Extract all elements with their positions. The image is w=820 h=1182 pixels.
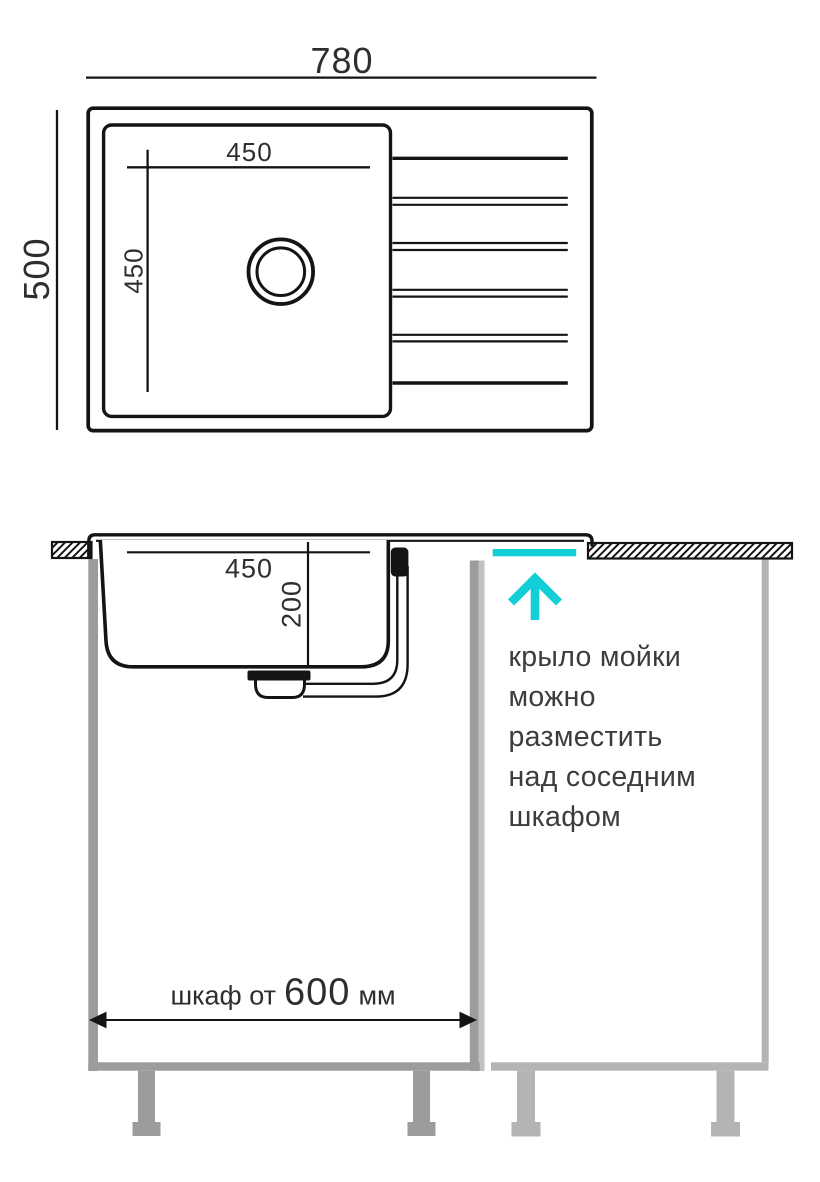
top-view: 780 500 450 450 [16, 40, 597, 431]
cabinet-leg [413, 1071, 430, 1122]
cabinet-width-value: 600 [284, 972, 350, 1014]
countertop-right-section [588, 543, 792, 559]
cabinet-left-side-panel [88, 559, 98, 1071]
overall-depth-label: 500 [16, 237, 57, 300]
annotation-text: крыло мойки можно разместить над соседни… [509, 641, 697, 833]
cabinet-leg [717, 1071, 735, 1122]
sink-technical-drawing: 780 500 450 450 [0, 0, 820, 1182]
wing-highlight-bar [493, 549, 577, 556]
annotation-line: шкафом [509, 801, 622, 833]
drain-flange [248, 671, 311, 681]
dimension-overall-width: 780 [86, 40, 597, 81]
annotation-line: крыло мойки [509, 641, 682, 673]
annotation-line: можно [509, 681, 596, 713]
side-view: 450 200 крыло мойки можно разместить над… [52, 535, 792, 1137]
up-arrow-icon [511, 579, 559, 621]
bowl-depth-label: 450 [118, 247, 148, 293]
cabinet-leg-foot [512, 1122, 541, 1137]
overall-width-label: 780 [310, 40, 373, 81]
dimension-cabinet-width: шкаф от600мм [89, 972, 477, 1029]
cabinet-width-label: шкаф от600мм [170, 972, 395, 1014]
cabinet-width-unit: мм [358, 981, 395, 1011]
annotation-line: над соседним [509, 761, 697, 793]
cabinet-left-right-panel [470, 561, 479, 1072]
cabinet-divider-edge [479, 561, 485, 1072]
dimension-overall-depth: 500 [16, 110, 57, 430]
cabinet-right-side-panel [762, 559, 769, 1062]
page: 780 500 450 450 [0, 0, 820, 1182]
cabinet-leg [517, 1071, 535, 1122]
drain-trap [256, 680, 305, 698]
cabinet-leg-foot [711, 1122, 740, 1137]
cabinet-left-bottom-panel [88, 1062, 479, 1070]
cabinet-leg-foot [133, 1122, 161, 1136]
cabinet-right-bottom-panel [491, 1062, 769, 1070]
section-bowl-depth-label: 200 [277, 580, 307, 628]
cabinet-leg [138, 1071, 155, 1122]
cabinet-leg-foot [408, 1122, 436, 1136]
section-bowl-width-label: 450 [225, 554, 273, 584]
overflow-elbow [391, 548, 409, 577]
countertop-left-section [52, 542, 92, 558]
annotation-line: разместить [509, 721, 663, 753]
cabinet-width-prefix: шкаф от [170, 981, 276, 1011]
bowl-width-label: 450 [226, 137, 272, 167]
